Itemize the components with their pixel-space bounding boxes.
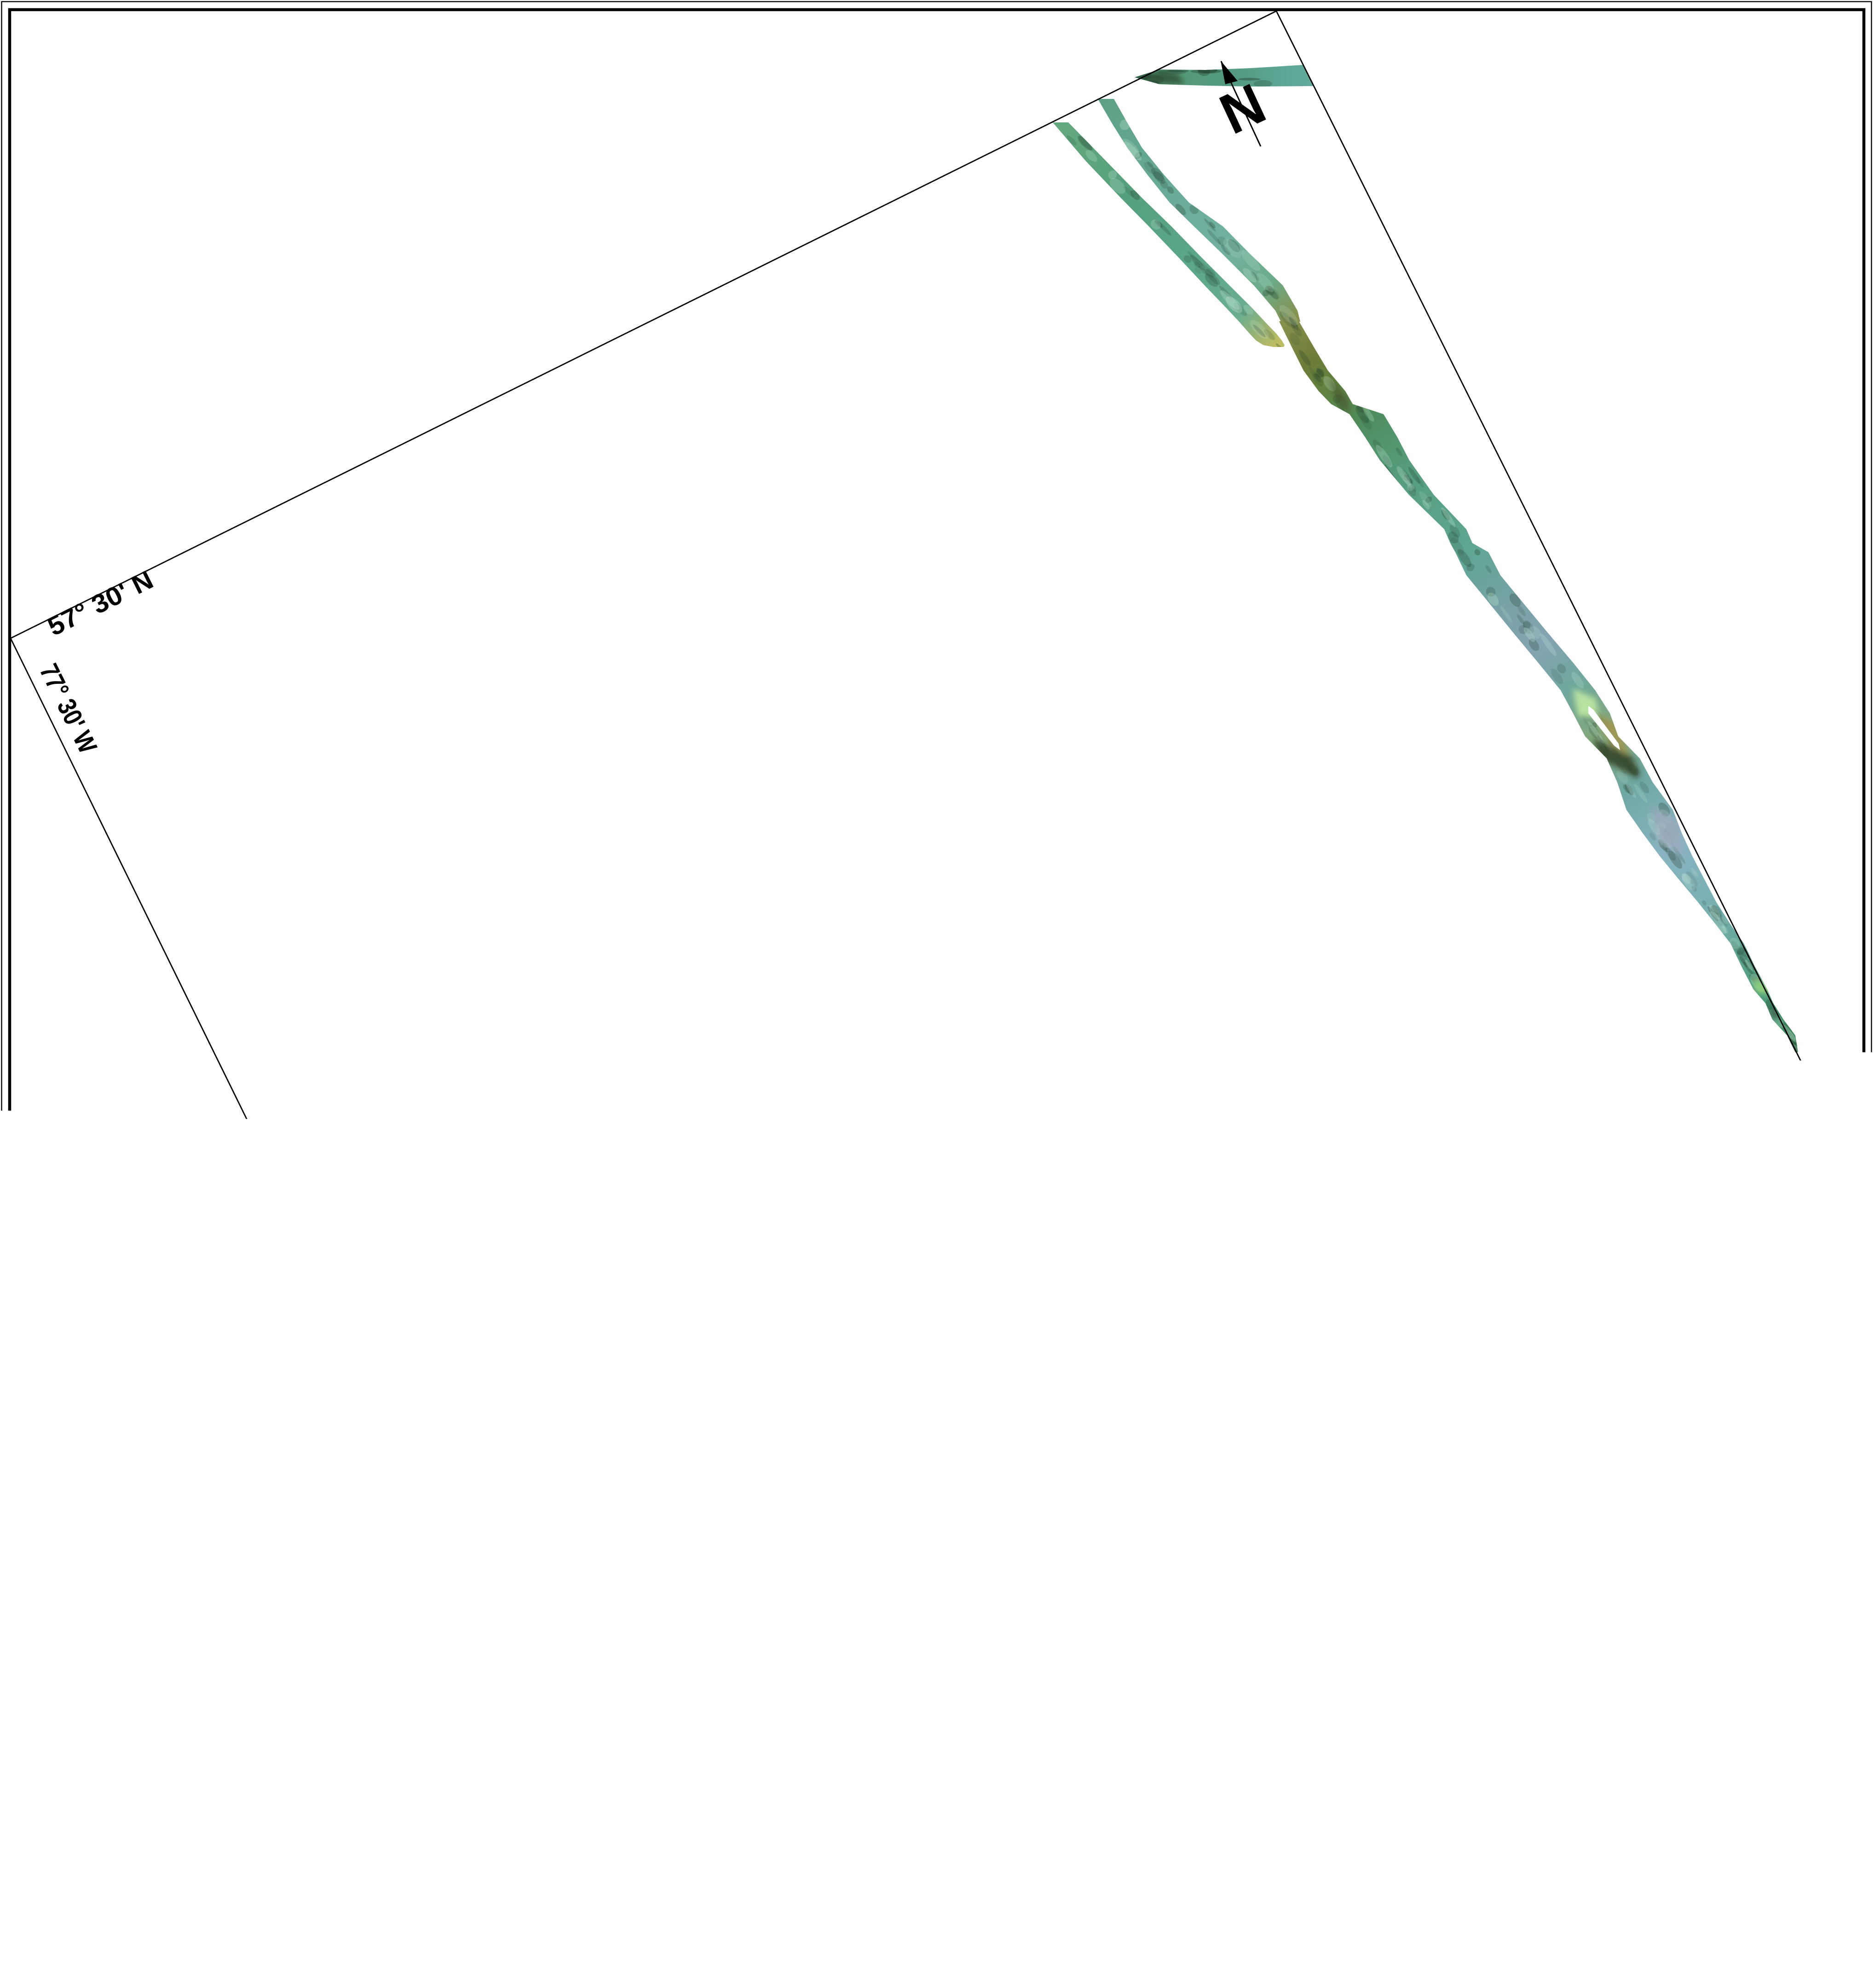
- svg-text:OMG/ArcticNet Basemap: 57_30_N: OMG/ArcticNet Basemap: 57_30_N_77_30_WGe…: [490, 1959, 1359, 1985]
- svg-text:20 km: 20 km: [1046, 1861, 1115, 1889]
- svg-text:150 m: 150 m: [394, 1924, 459, 1950]
- svg-text:ArcticNet: ArcticNet: [1664, 1857, 1801, 1898]
- svg-text:10 NM: 10 NM: [1047, 1921, 1119, 1948]
- svg-text:Ocean Mapping Group: Ocean Mapping Group: [12, 1837, 275, 1869]
- svg-text:0 m: 0 m: [394, 1830, 433, 1855]
- svg-text:CANADA: CANADA: [121, 1925, 174, 1942]
